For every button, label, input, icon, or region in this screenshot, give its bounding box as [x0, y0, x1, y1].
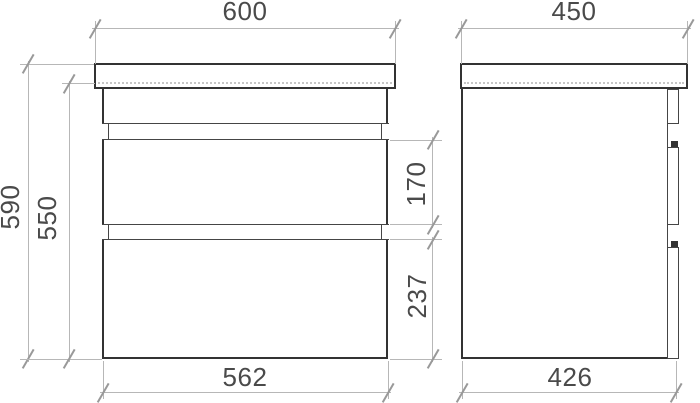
- dim-label-top-width: 600: [200, 0, 290, 24]
- front-countertop: [94, 63, 396, 89]
- drawer-gap-1-right-panel-line: [381, 124, 382, 140]
- side-body-bottom-edge: [461, 357, 679, 360]
- side-body-left-edge: [461, 89, 463, 358]
- front-body-bottom-edge: [102, 357, 389, 360]
- side-drawer1-front-profile: [667, 147, 679, 225]
- side-countertop-dotted-edge: [464, 82, 684, 84]
- dim-line-426: [459, 392, 679, 393]
- dim-line-562: [100, 392, 391, 393]
- dim-label-body-height: 550: [34, 173, 60, 263]
- dim-label-top-depth: 450: [529, 0, 619, 24]
- dim-line-450: [458, 28, 691, 29]
- dim-label-drawer2-height: 237: [404, 251, 430, 341]
- drawer-gap-2-left-panel-line: [108, 225, 109, 240]
- dim-label-drawer1-height: 170: [403, 139, 429, 229]
- extension-line: [20, 64, 94, 65]
- front-countertop-dotted-edge: [98, 82, 392, 84]
- extension-line: [390, 239, 442, 240]
- dim-line-600: [92, 28, 399, 29]
- drawer-gap-2-right-panel-line: [381, 225, 382, 240]
- side-drawer2-front-profile: [667, 247, 679, 359]
- side-apron-profile: [667, 89, 679, 124]
- drawer-gap-1-left-panel-line: [108, 124, 109, 140]
- dim-line-237: [432, 237, 433, 362]
- dim-label-bottom-depth: 426: [525, 364, 615, 390]
- dim-label-total-height: 590: [0, 162, 23, 252]
- dimension-drawing-canvas: 600 450 590 550 170 237 562 426: [0, 0, 700, 403]
- dim-line-170: [432, 137, 433, 228]
- drawer-gap-2: [102, 224, 389, 240]
- extension-line: [390, 359, 442, 360]
- dim-line-590: [28, 61, 29, 362]
- dim-label-bottom-width: 562: [200, 364, 290, 390]
- drawer-gap-1: [102, 123, 389, 140]
- side-countertop: [460, 63, 688, 89]
- extension-line: [20, 359, 102, 360]
- dim-line-550: [69, 81, 70, 362]
